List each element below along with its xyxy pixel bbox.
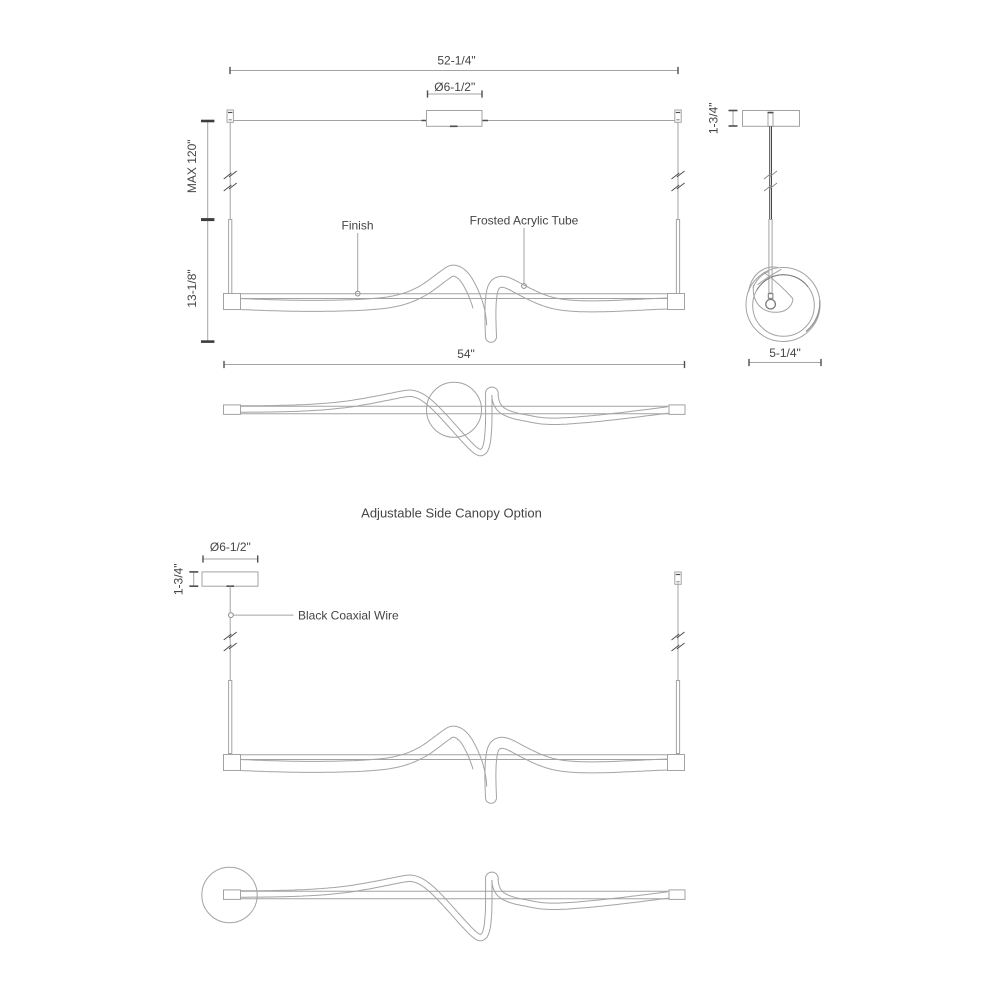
svg-text:Finish: Finish (341, 219, 373, 233)
svg-text:54": 54" (457, 347, 475, 361)
svg-text:Ø6-1/2": Ø6-1/2" (434, 80, 475, 94)
svg-text:5-1/4": 5-1/4" (769, 346, 801, 360)
svg-text:1-3/4": 1-3/4" (172, 563, 186, 595)
svg-text:MAX 120": MAX 120" (185, 139, 199, 193)
svg-text:1-3/4": 1-3/4" (707, 102, 721, 134)
svg-text:Black Coaxial Wire: Black Coaxial Wire (298, 608, 399, 622)
svg-text:Ø6-1/2": Ø6-1/2" (210, 540, 251, 554)
svg-text:Frosted Acrylic Tube: Frosted Acrylic Tube (470, 214, 579, 228)
svg-text:13-1/8": 13-1/8" (185, 269, 199, 307)
svg-text:Adjustable Side Canopy Option: Adjustable Side Canopy Option (361, 506, 542, 521)
svg-text:52-1/4": 52-1/4" (437, 54, 475, 68)
